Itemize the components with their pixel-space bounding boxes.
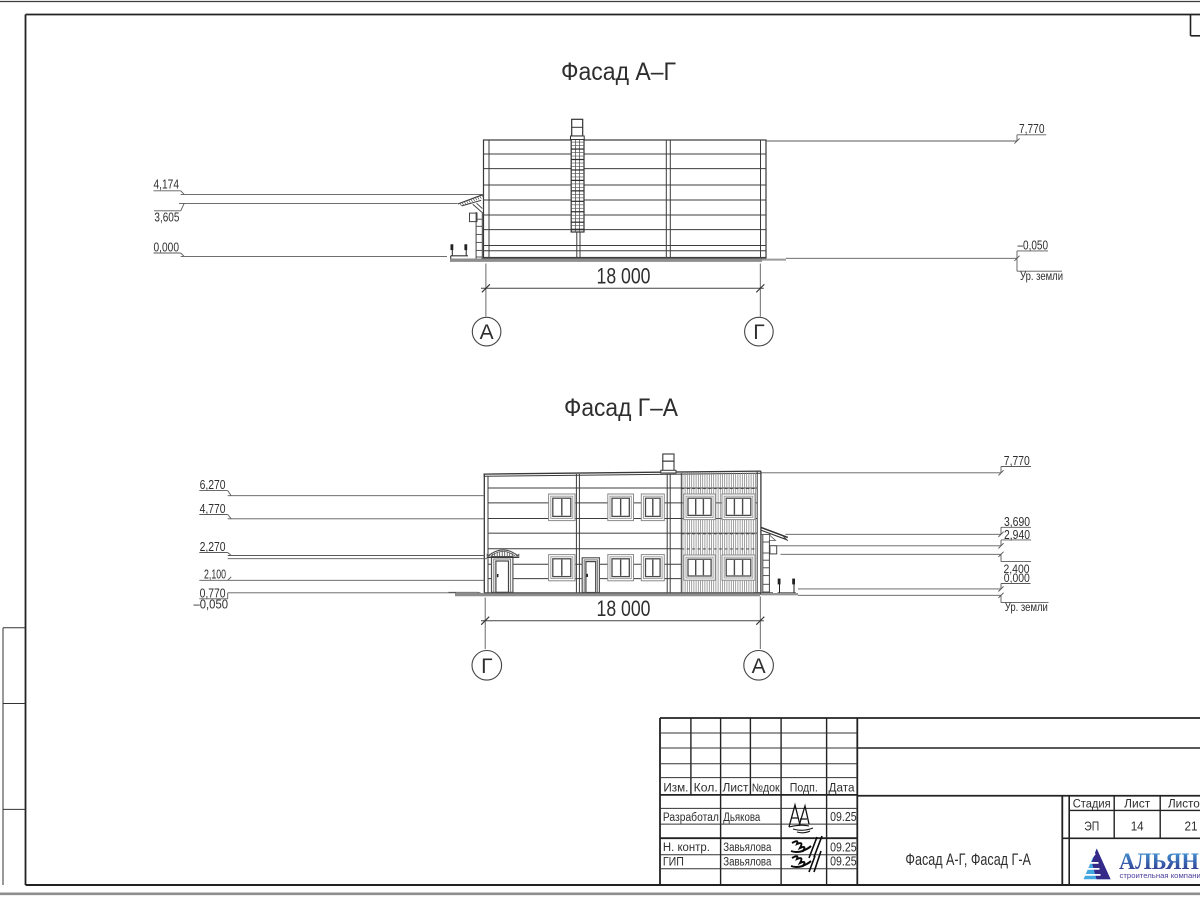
svg-text:№док: №док [752, 782, 781, 794]
svg-text:6,270: 6,270 [200, 477, 226, 492]
svg-text:18 000: 18 000 [597, 264, 651, 289]
svg-text:4,174: 4,174 [154, 177, 180, 192]
svg-text:0,000: 0,000 [154, 240, 180, 255]
svg-text:А: А [480, 321, 494, 344]
svg-text:Разработал: Разработал [663, 812, 719, 824]
svg-text:09.25: 09.25 [830, 840, 857, 854]
svg-text:Стадия: Стадия [1073, 798, 1111, 810]
svg-text:Лист: Лист [723, 782, 750, 794]
svg-text:14: 14 [1131, 820, 1144, 834]
svg-text:18 000: 18 000 [597, 596, 651, 621]
svg-text:7,770: 7,770 [1019, 121, 1045, 136]
svg-text:Дьякова: Дьякова [723, 812, 760, 824]
svg-text:Фасад А-Г, Фасад Г-А: Фасад А-Г, Фасад Г-А [905, 851, 1031, 869]
svg-text:Лист: Лист [1124, 798, 1151, 810]
svg-text:Подп.: Подп. [790, 782, 818, 794]
svg-text:Н. контр.: Н. контр. [663, 842, 710, 854]
svg-text:А: А [752, 655, 766, 678]
svg-text:–0,050: –0,050 [194, 597, 229, 612]
svg-text:4,770: 4,770 [200, 501, 226, 516]
svg-text:Фасад Г–А: Фасад Г–А [564, 394, 678, 422]
svg-text:3,605: 3,605 [154, 209, 179, 224]
svg-text:21: 21 [1185, 820, 1198, 834]
svg-text:Дата: Дата [829, 782, 856, 794]
svg-text:Ур. земли: Ур. земли [1005, 600, 1048, 614]
svg-text:7,770: 7,770 [1004, 453, 1030, 468]
svg-text:ЭП: ЭП [1084, 820, 1099, 834]
svg-text:2,100: 2,100 [204, 567, 226, 582]
svg-text:ГИП: ГИП [663, 856, 684, 868]
svg-text:Г: Г [753, 321, 764, 344]
svg-text:Изм.: Изм. [663, 782, 688, 794]
svg-text:Кол.: Кол. [694, 782, 718, 794]
svg-text:2,270: 2,270 [200, 539, 226, 554]
svg-text:Фасад А–Г: Фасад А–Г [561, 58, 676, 86]
svg-text:Г: Г [481, 655, 492, 678]
svg-text:строительная компания и: строительная компания и [1120, 871, 1200, 880]
svg-text:Листов: Листов [1168, 798, 1200, 810]
svg-text:Ур. земли: Ур. земли [1020, 269, 1063, 283]
svg-text:Завьялова: Завьялова [723, 856, 772, 868]
svg-text:Завьялова: Завьялова [723, 842, 772, 854]
svg-text:09.25: 09.25 [830, 855, 857, 869]
svg-text:–0,050: –0,050 [1018, 238, 1049, 253]
svg-text:09.25: 09.25 [830, 810, 857, 824]
